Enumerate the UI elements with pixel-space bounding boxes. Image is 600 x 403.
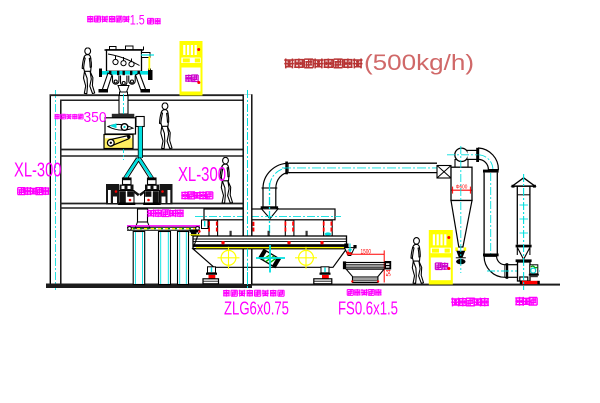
svg-text:FS0.6x1.5: FS0.6x1.5 [338,299,398,319]
svg-text:Φ600: Φ600 [456,184,468,190]
svg-text:1500: 1500 [361,250,372,256]
svg-text:1.5: 1.5 [130,12,145,28]
svg-text:ZLG6x0.75: ZLG6x0.75 [224,299,289,319]
svg-text:XL-300: XL-300 [14,160,62,182]
svg-text:(500kg/h): (500kg/h) [364,50,474,75]
svg-text:XL-300: XL-300 [178,164,226,186]
svg-text:350: 350 [84,109,107,126]
